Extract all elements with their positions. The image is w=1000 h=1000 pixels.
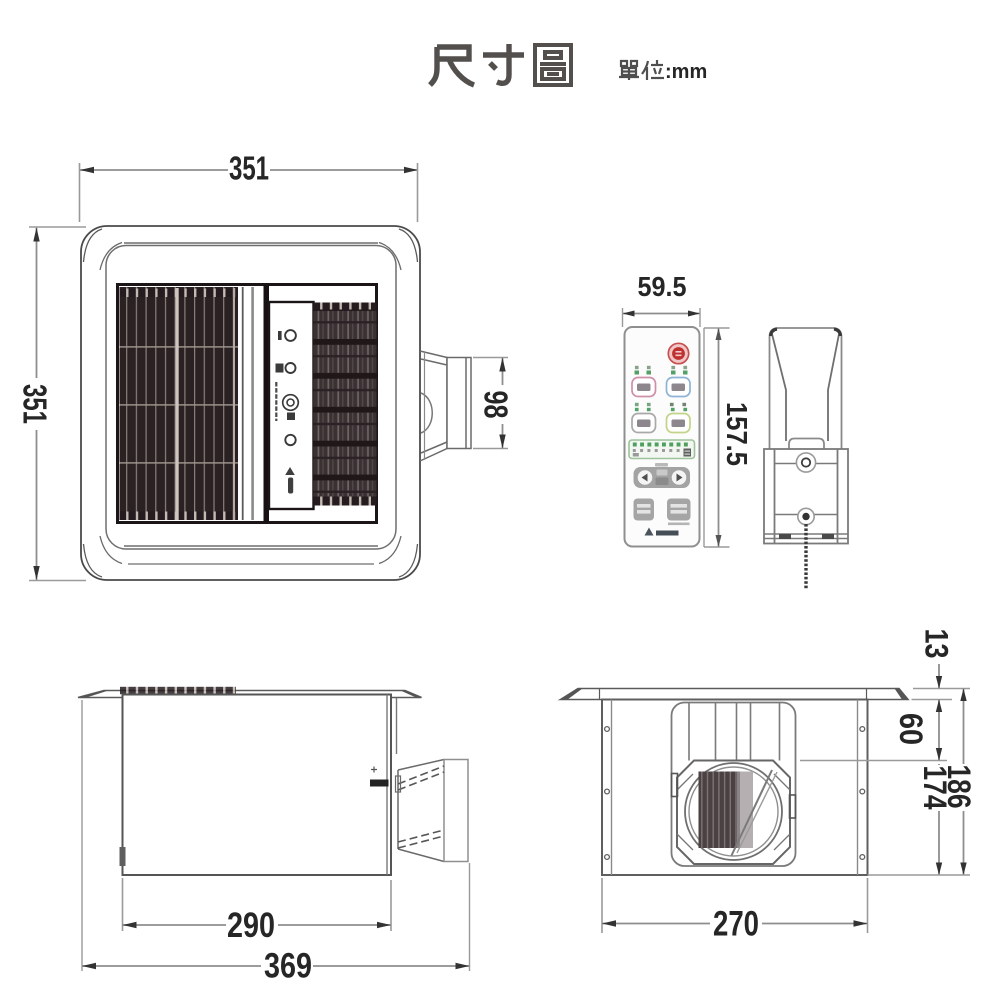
svg-text:186: 186: [941, 765, 977, 809]
svg-text:59.5: 59.5: [638, 271, 687, 302]
svg-text:60: 60: [893, 713, 929, 745]
svg-text:369: 369: [264, 947, 312, 986]
svg-text:13: 13: [919, 629, 955, 659]
svg-text:351: 351: [17, 384, 54, 424]
svg-text:157.5: 157.5: [720, 402, 752, 466]
svg-text:351: 351: [229, 150, 269, 187]
svg-text:98: 98: [478, 391, 515, 419]
svg-text:270: 270: [713, 905, 759, 944]
svg-text::mm: :mm: [665, 61, 707, 83]
svg-text:290: 290: [227, 906, 275, 945]
